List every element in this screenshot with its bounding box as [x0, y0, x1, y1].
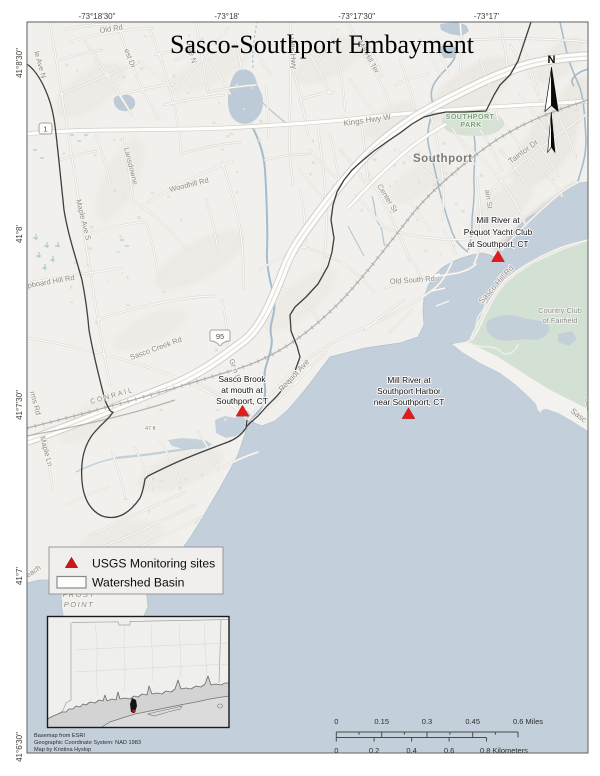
svg-text:Sasco-Southport Embayment: Sasco-Southport Embayment	[170, 30, 475, 59]
svg-text:-73°18'30": -73°18'30"	[79, 12, 116, 21]
svg-text:1: 1	[43, 125, 47, 134]
svg-text:0.15: 0.15	[374, 717, 389, 726]
svg-text:-73°17': -73°17'	[474, 12, 500, 21]
svg-text:Basemap from ESRI: Basemap from ESRI	[34, 733, 85, 739]
svg-text:Southport: Southport	[413, 153, 472, 165]
svg-text:0.2: 0.2	[369, 746, 379, 755]
svg-text:at mouth at: at mouth at	[221, 385, 263, 395]
svg-text:Mill River at: Mill River at	[476, 215, 520, 225]
svg-text:0.45: 0.45	[465, 717, 480, 726]
svg-text:0: 0	[334, 746, 338, 755]
svg-text:PARK: PARK	[460, 120, 482, 129]
svg-text:POINT: POINT	[64, 600, 94, 609]
svg-text:0.6: 0.6	[444, 746, 454, 755]
svg-text:41°7'30": 41°7'30"	[15, 390, 24, 420]
svg-text:Map by Kristina Hyslop: Map by Kristina Hyslop	[34, 747, 91, 753]
svg-text:0.8 Kilometers: 0.8 Kilometers	[480, 746, 528, 755]
svg-text:Geographic Coordinate System:: Geographic Coordinate System: NAD 1983	[34, 740, 141, 746]
svg-text:47 ft: 47 ft	[145, 426, 156, 432]
svg-text:0.4: 0.4	[406, 746, 416, 755]
svg-text:0.3: 0.3	[422, 717, 432, 726]
svg-text:Pequot Yacht Club: Pequot Yacht Club	[464, 227, 533, 237]
svg-text:Watershed Basin: Watershed Basin	[92, 576, 184, 590]
svg-text:N: N	[548, 54, 556, 66]
svg-text:41°8'30": 41°8'30"	[15, 48, 24, 78]
svg-text:Sasco Brook: Sasco Brook	[218, 374, 266, 384]
svg-text:95: 95	[216, 332, 224, 341]
svg-text:near Southport, CT: near Southport, CT	[374, 397, 445, 407]
svg-text:Country Club: Country Club	[538, 306, 582, 315]
svg-text:0.6 Miles: 0.6 Miles	[513, 717, 543, 726]
svg-text:Southport Harbor: Southport Harbor	[377, 386, 441, 396]
svg-text:-73°17'30": -73°17'30"	[338, 12, 375, 21]
svg-text:41°7': 41°7'	[15, 566, 24, 585]
svg-text:-73°18': -73°18'	[214, 12, 240, 21]
svg-text:Mill River at: Mill River at	[387, 375, 431, 385]
svg-text:0: 0	[334, 717, 338, 726]
svg-text:of Fairfield: of Fairfield	[542, 316, 577, 325]
svg-text:41°8': 41°8'	[15, 224, 24, 243]
svg-text:at Southport, CT: at Southport, CT	[468, 239, 529, 249]
svg-text:41°6'30": 41°6'30"	[15, 732, 24, 762]
svg-text:USGS Monitoring sites: USGS Monitoring sites	[92, 557, 215, 571]
svg-text:Southport, CT: Southport, CT	[216, 396, 268, 406]
